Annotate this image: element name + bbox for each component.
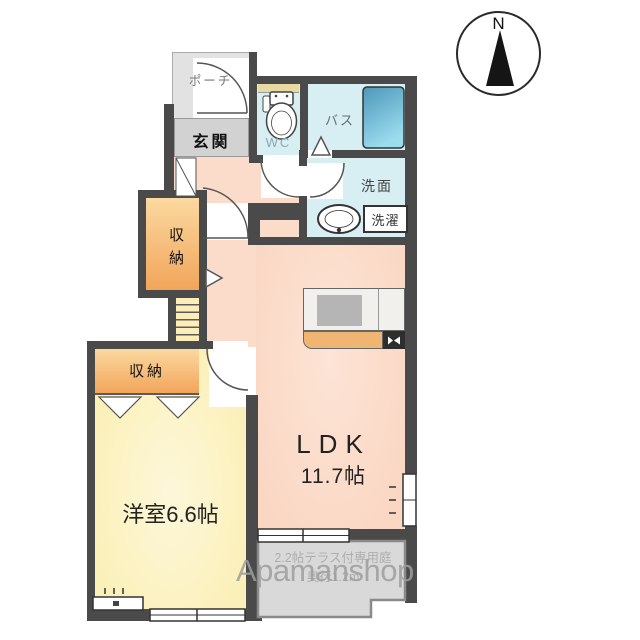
staircase	[176, 298, 201, 345]
washroom-label: 洗面	[352, 176, 402, 196]
wc-door-threshold	[263, 155, 299, 163]
wc-door-swing-area	[261, 158, 299, 198]
compass-needle-icon	[486, 30, 514, 86]
wall-stairs-left	[168, 298, 176, 345]
wall-washroom-left-top	[299, 150, 307, 166]
wall-right-upper	[405, 76, 417, 474]
wall-storage-hall-left	[138, 190, 146, 298]
ldk-size: 11.7帖	[276, 460, 391, 490]
floor-plan: ポーチ 玄関 WC バス 洗面 洗濯 収納 収納 洋室6.6帖 LDK 11.7…	[0, 0, 640, 640]
wall-bath-bottom	[332, 150, 405, 158]
porch-label: ポーチ	[172, 70, 249, 89]
wall-wc-bath	[300, 84, 308, 158]
wc-label: WC	[257, 135, 300, 150]
kitchen-sink	[317, 295, 362, 326]
kitchen-stove	[383, 331, 405, 349]
western-room-label: 洋室6.6帖	[95, 497, 246, 529]
watermark: Apamanshop	[236, 553, 414, 589]
wall-western-left	[87, 341, 95, 621]
laundry-box: 洗濯	[363, 205, 408, 233]
hall-door-swing-area	[200, 203, 248, 240]
kitchen-counter-front	[303, 331, 383, 349]
storage-hall-label: 収納	[158, 218, 186, 282]
wall-storage-hall-top	[138, 190, 207, 198]
wall-western-top	[87, 341, 213, 349]
wall-stairs-right	[199, 298, 207, 345]
laundry-label: 洗濯	[371, 210, 399, 229]
western-door-swing-area	[209, 341, 248, 407]
wall-wc-bottom	[249, 155, 263, 163]
kitchen-counter-divider	[378, 289, 379, 330]
ldk-label: LDK 11.7帖	[276, 429, 391, 490]
wall-top	[249, 76, 417, 84]
wall-porch-wc	[249, 52, 257, 160]
wall-entrance-left	[164, 104, 174, 198]
wall-washroom-bottom	[248, 237, 405, 245]
washroom-door-swing-area	[299, 163, 343, 199]
wall-hall-jamb	[248, 203, 260, 243]
wall-western-bottom-left	[87, 609, 150, 621]
wall-storage-hall-right	[199, 190, 207, 298]
wall-storage-hall-bottom	[138, 290, 207, 298]
wall-ldk-bottom	[349, 529, 405, 541]
compass: N	[456, 11, 541, 96]
entrance-label: 玄関	[174, 128, 249, 152]
bath-label: バス	[318, 110, 362, 129]
wc-shelf	[258, 84, 299, 93]
ldk-name: LDK	[276, 429, 391, 460]
window-western-bottom	[150, 609, 245, 621]
storage-bedroom-label: 収納	[95, 360, 199, 381]
